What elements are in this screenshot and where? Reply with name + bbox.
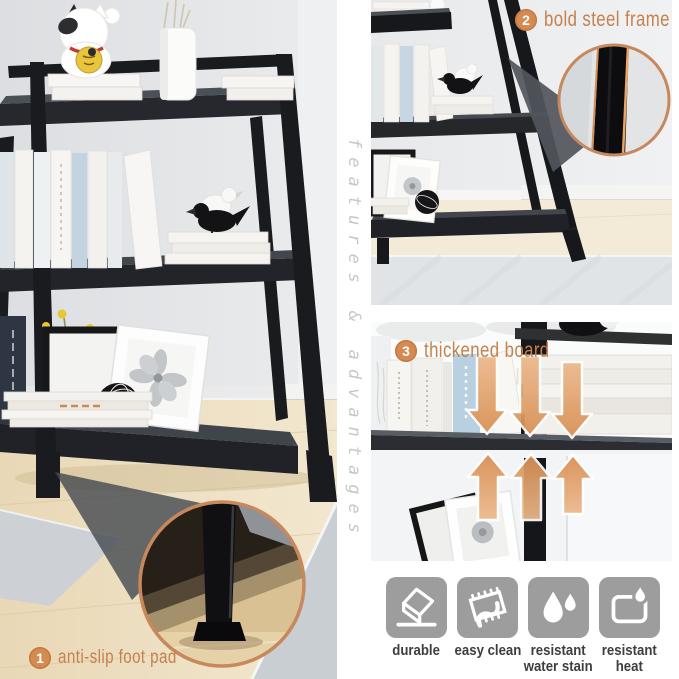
foot-pad	[193, 622, 246, 641]
product-feature-collage: 1 anti-slip foot pad features & advantag…	[0, 0, 679, 679]
side-caption-strip: features & advantages	[337, 0, 371, 679]
top-right-photo-illustration	[371, 0, 672, 305]
feature-easy-clean: easy clean	[452, 577, 523, 675]
callout-number-badge: 1	[29, 647, 51, 669]
feature-label: easy clean	[454, 643, 521, 659]
wipe-clean-icon	[457, 577, 518, 638]
stacked-books	[2, 392, 152, 427]
callout-thickened-board: 3 thickened board	[395, 339, 581, 363]
left-photo-illustration	[0, 0, 337, 679]
water-drops-icon	[528, 577, 589, 638]
feature-label: durable	[393, 643, 441, 659]
feature-label: resistantwater stain	[524, 643, 593, 675]
bottom-shelf-decor	[371, 152, 440, 223]
side-caption: features & advantages	[344, 138, 364, 542]
callout-number-badge: 3	[395, 340, 417, 362]
eraser-icon	[386, 577, 447, 638]
callout-label: bold steel frame	[544, 8, 670, 32]
feature-water-resistant: resistantwater stain	[523, 577, 594, 675]
callout-label: thickened board	[424, 339, 550, 363]
feature-icons-row: durable easy clean	[381, 577, 671, 675]
feature-heat-resistant: resistantheat	[594, 577, 665, 675]
callout-foot-pad: 1 anti-slip foot pad	[29, 647, 206, 669]
callout-label: anti-slip foot pad	[58, 647, 177, 669]
feature-durable: durable	[381, 577, 452, 675]
bottom-right-photo-panel: 3 thickened board	[371, 322, 672, 561]
heat-flame-icon	[599, 577, 660, 638]
top-right-photo-panel: 2 bold steel frame	[371, 0, 672, 305]
callout-number-badge: 2	[515, 9, 537, 31]
feature-label: resistantheat	[602, 643, 657, 675]
zoom-circle-steel-frame	[557, 43, 671, 157]
left-photo-panel: 1 anti-slip foot pad	[0, 0, 337, 679]
callout-steel-frame: 2 bold steel frame	[515, 8, 672, 32]
